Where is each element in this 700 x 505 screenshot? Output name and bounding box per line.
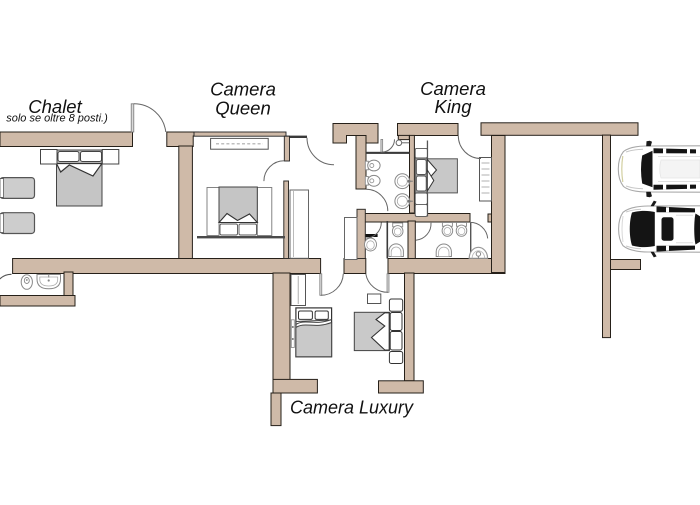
svg-text:King: King [434, 96, 472, 117]
svg-text:Queen: Queen [215, 97, 271, 118]
svg-text:Camera Luxury: Camera Luxury [290, 398, 414, 418]
svg-text:solo se oltre 8 posti.): solo se oltre 8 posti.) [6, 112, 108, 124]
